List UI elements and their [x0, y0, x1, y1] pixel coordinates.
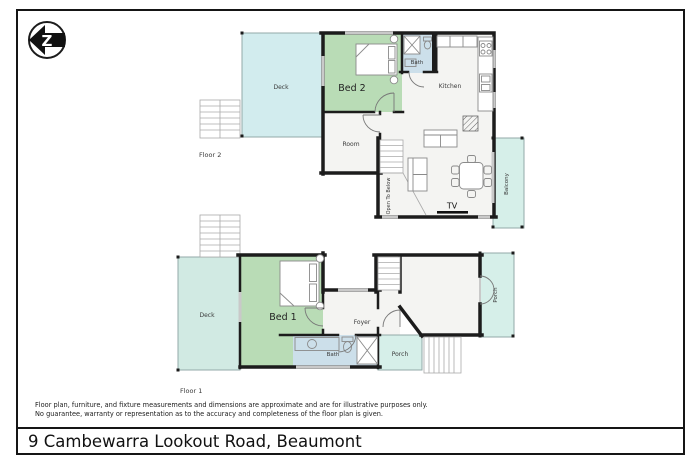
- floor1-plan: Deck Bed 1 Foyer Bath Porch Porch Floor …: [177, 215, 515, 395]
- property-address: 9 Cambewarra Lookout Road, Beaumont: [28, 432, 362, 451]
- floor2-hatched-unit: [463, 116, 478, 131]
- tv-unit: [437, 211, 468, 214]
- floor2-exterior-stairs: [200, 100, 240, 138]
- floor1-deck-label: Deck: [199, 312, 215, 319]
- floorplan-drawing: Z: [0, 0, 700, 467]
- floor1-exterior-stairs-bottom: [424, 337, 461, 373]
- floor2-shower-icon: [404, 36, 420, 54]
- floor2-bed2-label: Bed 2: [338, 83, 365, 94]
- floor2-plan: Deck Bed 2 Bath Kitchen Room Balcony Ope…: [199, 32, 524, 229]
- floor1-shower-icon: [357, 337, 378, 364]
- room-label: Room: [342, 141, 359, 148]
- north-arrow-logo: Z: [29, 22, 65, 58]
- sofa: [424, 130, 457, 147]
- disclaimer-line2: No guarantee, warranty or representation…: [35, 410, 428, 419]
- floor1-bath-label: Bath: [327, 352, 340, 358]
- bed1-furniture: [280, 255, 324, 310]
- disclaimer: Floor plan, furniture, and fixture measu…: [35, 401, 428, 419]
- porch-right-label: Porch: [493, 287, 499, 303]
- tv-label: TV: [446, 202, 458, 211]
- floor1-label: Floor 1: [180, 387, 202, 395]
- balcony-label: Balcony: [504, 172, 510, 195]
- floor1-interior-stairs: [378, 257, 400, 290]
- porch-label: Porch: [392, 351, 409, 358]
- floor1-exterior-stairs-top: [200, 215, 240, 257]
- title-divider: [16, 427, 685, 429]
- bed1-label: Bed 1: [269, 312, 296, 323]
- kitchen-label: Kitchen: [439, 83, 462, 90]
- floor2-bath-label: Bath: [411, 60, 424, 66]
- foyer-label: Foyer: [354, 319, 371, 326]
- logo-letter: Z: [42, 32, 53, 50]
- armchair: [408, 158, 427, 191]
- floorplan-page: Z: [0, 0, 700, 467]
- floor2-label: Floor 2: [199, 151, 221, 159]
- disclaimer-line1: Floor plan, furniture, and fixture measu…: [35, 401, 428, 410]
- floor2-deck-label: Deck: [273, 84, 289, 91]
- foyer-room: [323, 290, 400, 335]
- open-to-below-label: Open To Below: [386, 178, 392, 215]
